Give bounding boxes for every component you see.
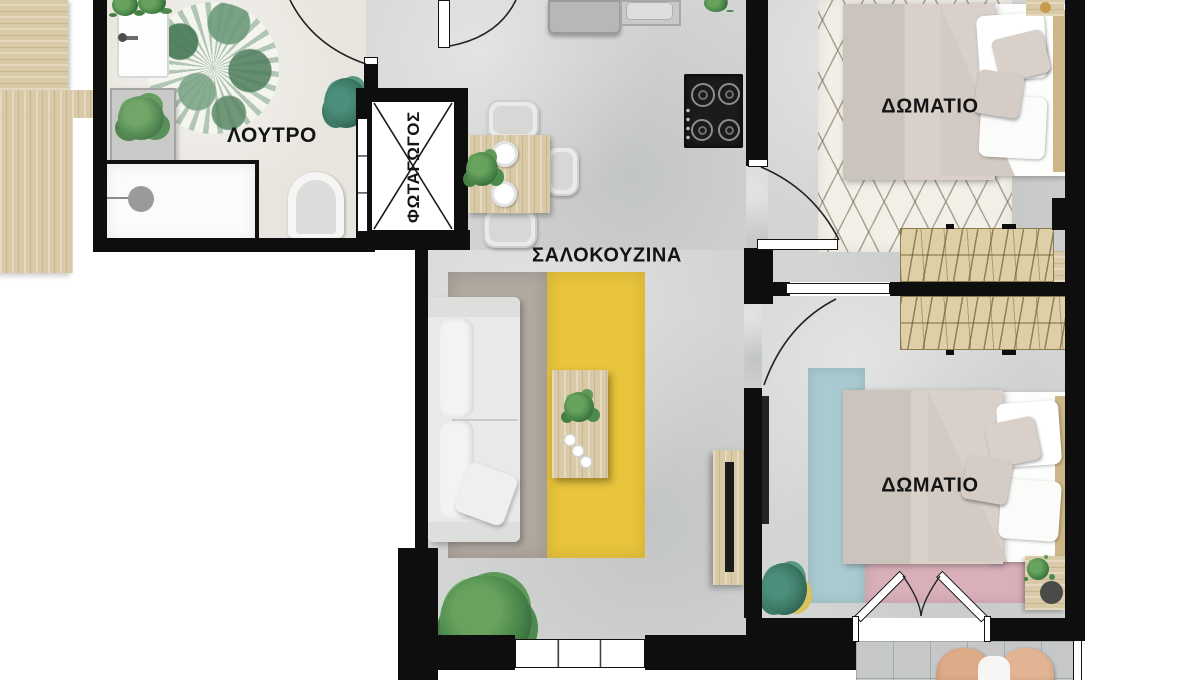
bathroom-door-arc (290, 0, 366, 64)
bathroom-label: ΛΟΥΤΡΟ (227, 124, 317, 148)
bedroom2-door-arc (764, 299, 836, 385)
lightwell-label: ΦΩΤΑΓΩΓΟΣ (404, 111, 424, 223)
door-arcs-svg (0, 0, 1200, 680)
entry-door-arc (450, 0, 516, 46)
bedroom1-door-arc (761, 167, 839, 240)
bedroom2-label: ΔΩΜΑΤΙΟ (881, 475, 978, 498)
living-kitchen-label: ΣΑΛΟΚΟΥΖΙΝΑ (532, 245, 682, 268)
bedroom1-label: ΔΩΜΑΤΙΟ (881, 96, 978, 119)
french-door-right-arc (921, 576, 940, 616)
floor-plan: ΛΟΥΤΡΟ ΦΩΤΑΓΩΓΟΣ ΣΑΛΟΚΟΥΖΙΝΑ ΔΩΜΑΤΙΟ ΔΩΜ… (0, 0, 1200, 680)
french-door-left-arc (903, 576, 921, 616)
